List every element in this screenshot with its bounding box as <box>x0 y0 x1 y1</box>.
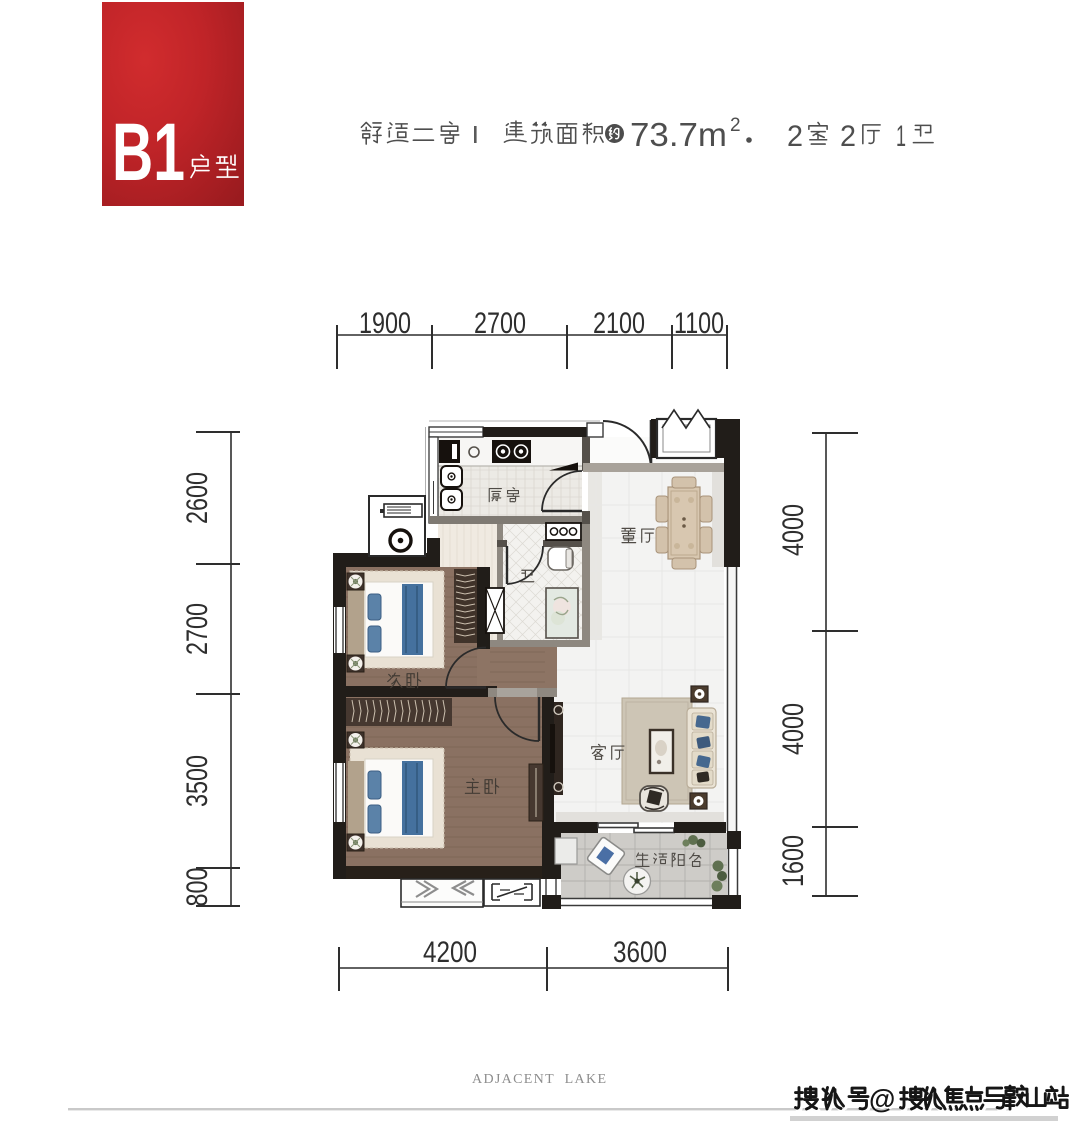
svg-text:2: 2 <box>730 115 741 136</box>
svg-text:800: 800 <box>181 868 214 907</box>
svg-text:ADJACENT LAKE: ADJACENT LAKE <box>472 1072 608 1087</box>
svg-text:2: 2 <box>840 120 856 153</box>
svg-text:2100: 2100 <box>593 307 645 340</box>
svg-text:2600: 2600 <box>181 472 214 524</box>
svg-text:3600: 3600 <box>613 936 667 969</box>
svg-text:4000: 4000 <box>777 504 810 556</box>
svg-text:2700: 2700 <box>181 603 214 655</box>
svg-text:1600: 1600 <box>777 835 810 887</box>
svg-text:73.7m: 73.7m <box>630 116 727 153</box>
svg-text:@: @ <box>869 1084 895 1114</box>
svg-text:2700: 2700 <box>474 307 526 340</box>
svg-text:1100: 1100 <box>674 307 724 340</box>
svg-text:4000: 4000 <box>777 703 810 755</box>
svg-text:3500: 3500 <box>181 755 214 807</box>
svg-text:1900: 1900 <box>359 307 411 340</box>
svg-text:B1: B1 <box>112 107 185 198</box>
svg-text:2: 2 <box>787 120 803 153</box>
svg-text:4200: 4200 <box>423 936 477 969</box>
svg-text:1: 1 <box>896 120 906 153</box>
